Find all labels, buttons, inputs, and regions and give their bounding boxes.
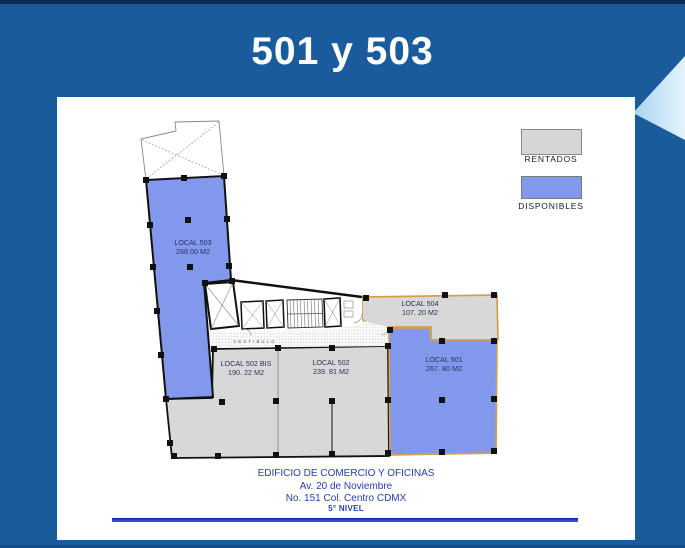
local-502-area-label: 239. 81 M2 [313,367,349,376]
page-title: 501 y 503 [0,30,685,74]
local-501-area [389,328,497,455]
legend-swatch-available [521,176,582,199]
local-502bis-area-label: 190. 22 M2 [228,368,264,377]
building-address: EDIFICIO DE COMERCIO Y OFICINAS Av. 20 d… [57,468,635,506]
footer-accent-line [112,518,578,522]
skylight-area [141,121,224,180]
top-accent-strip [0,0,685,4]
local-502bis-label: LOCAL 502 BIS [221,359,272,368]
slide: 501 y 503 [0,0,685,548]
local-504-label: LOCAL 504 [401,299,438,308]
level-label: 5° NIVEL [57,504,635,513]
vestibule-label: VESTIBULO [233,339,276,344]
local-503-label: LOCAL 503 [174,238,211,247]
legend-label-available: DISPONIBLES [491,201,611,211]
local-504-area-label: 107. 20 M2 [402,308,438,317]
local-501-label: LOCAL 501 [425,355,462,364]
local-503-area-label: 268.00 M2 [176,247,210,256]
stairs [287,299,323,328]
legend-label-rented: RENTADOS [491,154,611,164]
local-502-label: LOCAL 502 [312,358,349,367]
address-line-2: Av. 20 de Noviembre [57,481,635,494]
address-line-1: EDIFICIO DE COMERCIO Y OFICINAS [57,468,635,481]
legend-swatch-rented [521,129,582,155]
decorative-triangle [628,52,685,144]
slide-content-panel: LOCAL 503 268.00 M2 LOCAL 504 107. 20 M2… [57,97,635,540]
local-501-area-label: 267. 80 M2 [426,364,462,373]
